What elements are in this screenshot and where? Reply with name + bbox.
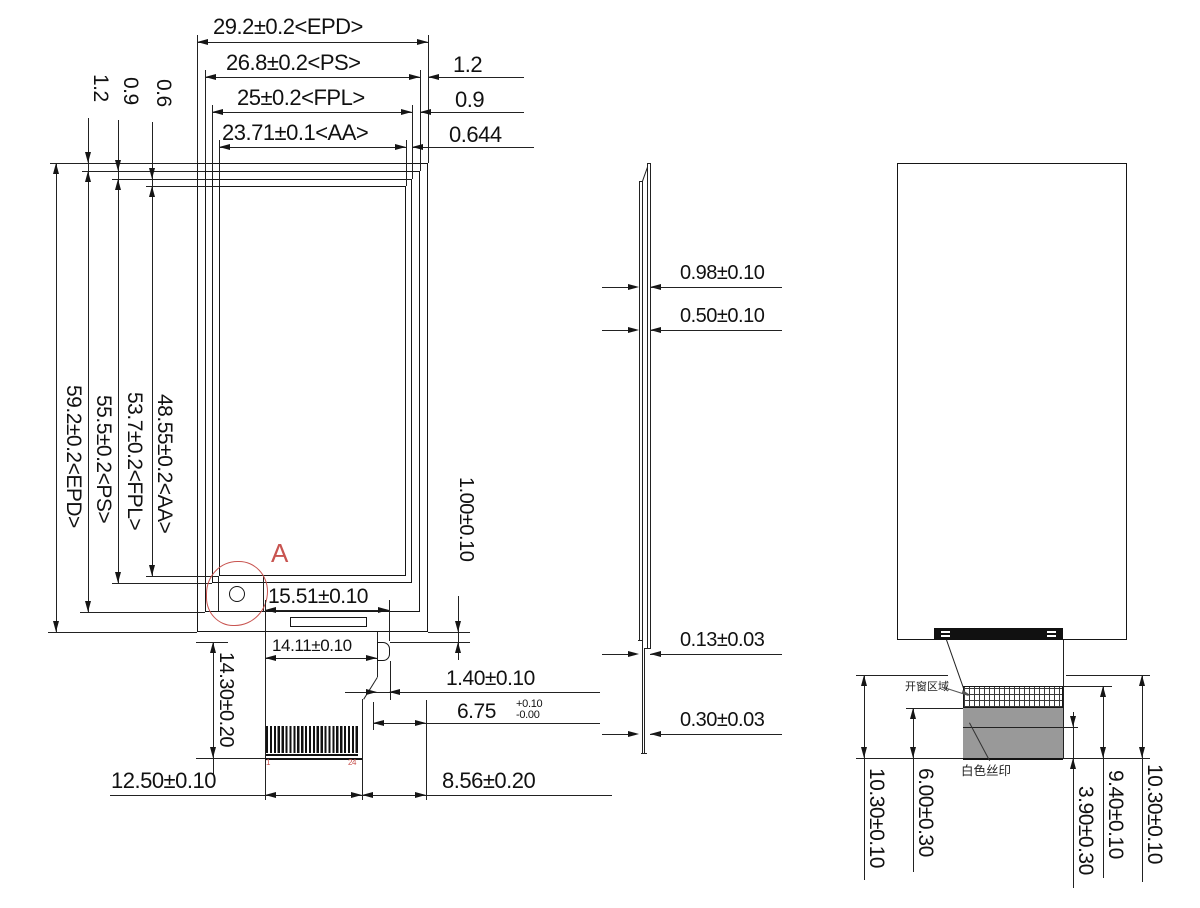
side-profile-cap: [644, 648, 651, 649]
arrowhead: [861, 747, 867, 758]
dim-silkscreen-offset: 3.90±0.30: [1073, 786, 1097, 875]
dim-thickness-total: 0.98±0.10: [680, 262, 764, 285]
side-fpc-line: [642, 640, 643, 753]
dim-gap-right-2: 0.9: [455, 87, 484, 113]
ext-line: [146, 576, 219, 577]
ext-line: [82, 171, 205, 172]
arrowhead: [412, 144, 423, 150]
dim-line: [650, 330, 782, 331]
ext-line: [212, 105, 213, 179]
dim-line: [650, 654, 782, 655]
back-outline: [897, 163, 1127, 640]
tab-right-edge: [362, 699, 363, 758]
dim-line: [602, 330, 628, 331]
side-profile-cap: [638, 640, 643, 641]
arrowhead: [910, 747, 916, 758]
arrowhead: [1070, 716, 1076, 727]
arrowhead: [455, 642, 461, 653]
dim-ps-height: 55.5±0.2<PS>: [91, 395, 115, 523]
arrowhead: [628, 651, 639, 657]
aa-outline: [219, 186, 406, 576]
dim-gap-top-2: 0.9: [118, 77, 142, 105]
silkscreen-ref-line: [963, 727, 1078, 728]
detail-a-label: A: [271, 538, 288, 569]
connector-bar: [934, 628, 1063, 640]
arrowhead: [149, 186, 155, 197]
ext-line: [412, 105, 413, 179]
ext-line: [406, 140, 407, 186]
ext-line: [426, 700, 427, 800]
ext-line: [428, 632, 470, 633]
arrowhead: [373, 720, 384, 726]
dim-tail-length: 14.30±0.20: [214, 652, 237, 747]
arrowhead: [415, 720, 426, 726]
ext-line: [205, 70, 206, 171]
ext-line: [389, 600, 390, 641]
dim-offset-tolerances: +0.10 -0.00: [516, 699, 542, 721]
side-fpc-cap: [641, 753, 647, 754]
dim-fpl-height: 53.7±0.2<FPL>: [122, 392, 146, 530]
dim-line: [345, 692, 600, 693]
arrowhead: [85, 152, 91, 163]
ext-line: [146, 186, 219, 187]
side-profile-line: [642, 181, 643, 640]
pin-24-label: 24: [348, 758, 356, 767]
dim-line: [197, 42, 428, 43]
dim-gap-right-3: 0.644: [449, 122, 502, 148]
tail-right-edge: [1063, 640, 1064, 758]
side-profile-cap: [647, 163, 651, 164]
arrowhead: [1070, 758, 1076, 769]
dim-window-height: 9.40±0.10: [1103, 770, 1127, 859]
dim-contact-width: 12.50±0.10: [111, 768, 216, 794]
dim-stiffener-width: 14.11±0.10: [272, 636, 352, 656]
arrowhead: [628, 731, 639, 737]
connector-bar-mark: [1047, 635, 1056, 637]
dim-edge-gap: 1.00±0.10: [454, 477, 477, 561]
arrowhead: [1139, 675, 1145, 686]
arrowhead: [1100, 686, 1106, 697]
silkscreen-area: [963, 708, 1063, 758]
dim-silkscreen-height: 6.00±0.30: [913, 768, 937, 857]
side-profile-line: [647, 163, 648, 648]
dim-line: [265, 610, 389, 611]
arrowhead: [205, 74, 216, 80]
slot-opening: [290, 617, 367, 627]
window-area: [963, 686, 1063, 708]
dim-line: [650, 734, 782, 735]
dim-line: [650, 287, 782, 288]
ext-line: [112, 583, 212, 584]
dim-line: [219, 147, 406, 148]
arrowhead: [415, 792, 426, 798]
arrowhead: [115, 179, 121, 190]
ext-line: [197, 35, 198, 163]
arrowhead: [362, 792, 373, 798]
arrowhead: [53, 163, 59, 174]
dim-gap-top-1: 1.2: [88, 74, 112, 102]
connector-bar-mark: [941, 635, 950, 637]
dim-ps-width: 26.8±0.2<PS>: [226, 50, 361, 76]
ext-line: [1063, 758, 1150, 759]
dim-fpc-thickness: 0.13±0.03: [680, 629, 764, 652]
ext-line: [48, 632, 197, 633]
ext-line: [420, 70, 421, 171]
arrowhead: [265, 792, 276, 798]
arrowhead: [628, 327, 639, 333]
tolerance-minus: -0.00: [516, 710, 542, 721]
ext-line: [856, 758, 963, 759]
dim-line: [205, 77, 420, 78]
dim-gap-top-3: 0.6: [151, 79, 175, 107]
dim-slot-width: 15.51±0.10: [268, 585, 368, 609]
arrowhead: [861, 675, 867, 686]
arrowhead: [409, 74, 420, 80]
arrowhead: [389, 689, 400, 695]
dim-line: [265, 658, 377, 659]
tab-left-edge: [265, 600, 266, 800]
arrowhead: [628, 284, 639, 290]
dim-bump-width: 1.40±0.10: [446, 667, 535, 691]
arrowhead: [149, 168, 155, 179]
dim-right-margin: 8.56±0.20: [442, 768, 535, 794]
contacts-base-line: [266, 754, 358, 756]
arrowhead: [428, 74, 439, 80]
dim-tail-right: 10.30±0.10: [1142, 764, 1166, 864]
arrowhead: [455, 621, 461, 632]
dim-line: [212, 112, 412, 113]
side-fpc-line: [644, 648, 645, 753]
ext-line: [50, 163, 197, 164]
arrowhead: [910, 708, 916, 719]
arrowhead: [366, 655, 377, 661]
tab-right-edge: [377, 632, 378, 642]
dim-aa-width: 23.71±0.1<AA>: [222, 120, 368, 146]
side-profile-line: [639, 181, 640, 640]
connector-bar-mark: [941, 631, 950, 633]
dim-line: [602, 734, 628, 735]
dim-epd-height: 59.2±0.2<EPD>: [61, 385, 85, 528]
mechanical-drawing-canvas: 29.2±0.2<EPD> 26.8±0.2<PS> 25±0.2<FPL> 2…: [0, 0, 1200, 908]
dim-fpl-width: 25±0.2<FPL>: [237, 85, 365, 111]
ext-line: [112, 179, 212, 180]
silkscreen-label: 白色丝印: [961, 760, 1011, 779]
dim-line: [88, 118, 89, 612]
tab-bump: [377, 642, 390, 661]
arrowhead: [420, 109, 431, 115]
dim-line: [602, 654, 628, 655]
connector-bar-mark: [1047, 631, 1056, 633]
dim-thickness-ps: 0.50±0.10: [680, 305, 764, 328]
arrowhead: [149, 565, 155, 576]
arrowhead: [366, 689, 377, 695]
arrowhead: [197, 39, 208, 45]
dim-aa-height: 48.55±0.2<AA>: [152, 394, 176, 533]
arrowhead: [1139, 747, 1145, 758]
ext-line: [80, 612, 205, 613]
arrowhead: [210, 747, 216, 758]
ext-line: [196, 758, 265, 759]
arrowhead: [115, 160, 121, 171]
window-area-label: 开窗区域: [905, 678, 949, 694]
arrowhead: [53, 621, 59, 632]
side-profile-line: [650, 163, 651, 648]
dim-connector-thickness: 0.30±0.03: [680, 709, 764, 732]
arrowhead: [85, 601, 91, 612]
dim-epd-width: 29.2±0.2<EPD>: [213, 14, 363, 40]
ext-line: [1066, 675, 1150, 676]
arrowhead: [417, 39, 428, 45]
dim-line: [56, 163, 57, 632]
dim-offset-value: 6.75: [457, 700, 496, 724]
pin-1-label: 1: [266, 758, 270, 767]
arrowhead: [395, 144, 406, 150]
arrowhead: [1100, 747, 1106, 758]
connector-contacts: [266, 726, 358, 753]
tab-right-edge: [377, 661, 378, 677]
arrowhead: [401, 109, 412, 115]
ext-line: [428, 35, 429, 163]
arrowhead: [115, 572, 121, 583]
dim-line: [602, 287, 628, 288]
arrowhead: [351, 792, 362, 798]
arrowhead: [378, 607, 389, 613]
dim-tail-left: 10.30±0.10: [864, 768, 888, 868]
ext-line: [856, 675, 948, 676]
arrowhead: [212, 109, 223, 115]
dim-gap-right-1: 1.2: [453, 52, 482, 78]
arrowhead: [85, 171, 91, 182]
